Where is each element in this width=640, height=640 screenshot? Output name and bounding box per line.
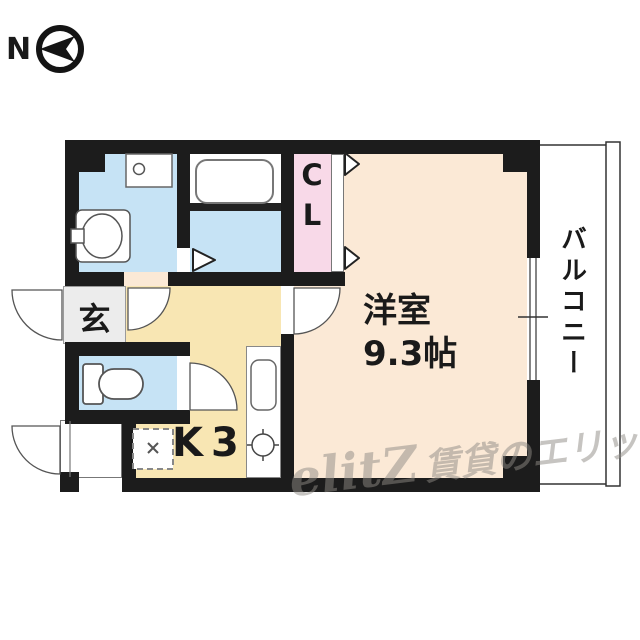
kitchen-label: K3 [172, 420, 247, 466]
bath-door-triangle-icon [193, 249, 215, 271]
main-room-label: 洋室 9.3帖 [363, 290, 457, 375]
bathtub-icon [196, 160, 273, 203]
closet-door-triangle-top-icon [345, 153, 359, 175]
closet-label-text: CL [295, 158, 329, 238]
stove-burner-icon [247, 429, 279, 461]
toilet-door-arc-icon [190, 363, 237, 410]
balcony-label: バルコニー [550, 225, 594, 425]
washing-machine-pan-icon [126, 154, 172, 187]
balcony-label-text: バルコニー [554, 225, 591, 425]
entrance-label: 玄 [63, 294, 126, 344]
closet-door-triangle-bottom-icon [345, 247, 359, 269]
gas-stove-space-icon [133, 429, 173, 469]
closet-label: CL [292, 158, 332, 276]
toilet-icon [83, 364, 143, 404]
main-room-door-arc-icon [294, 288, 340, 334]
storage-door-arc-icon [12, 426, 60, 474]
front-door-arc-icon [12, 290, 62, 340]
floor-plan-canvas: N 玄 K3 CL 洋室 9.3帖 バルコニー elitZ賃貸のエリッツ [0, 0, 640, 640]
main-room-size: 9.3帖 [363, 333, 457, 376]
main-room-name: 洋室 [363, 290, 457, 333]
compass-arrow-icon [39, 28, 81, 70]
kitchen-sink-icon [251, 360, 276, 410]
north-label: N [6, 32, 31, 67]
washroom-door-arc-icon [128, 288, 170, 330]
window-icon [518, 258, 548, 380]
washbasin-icon [71, 210, 130, 262]
